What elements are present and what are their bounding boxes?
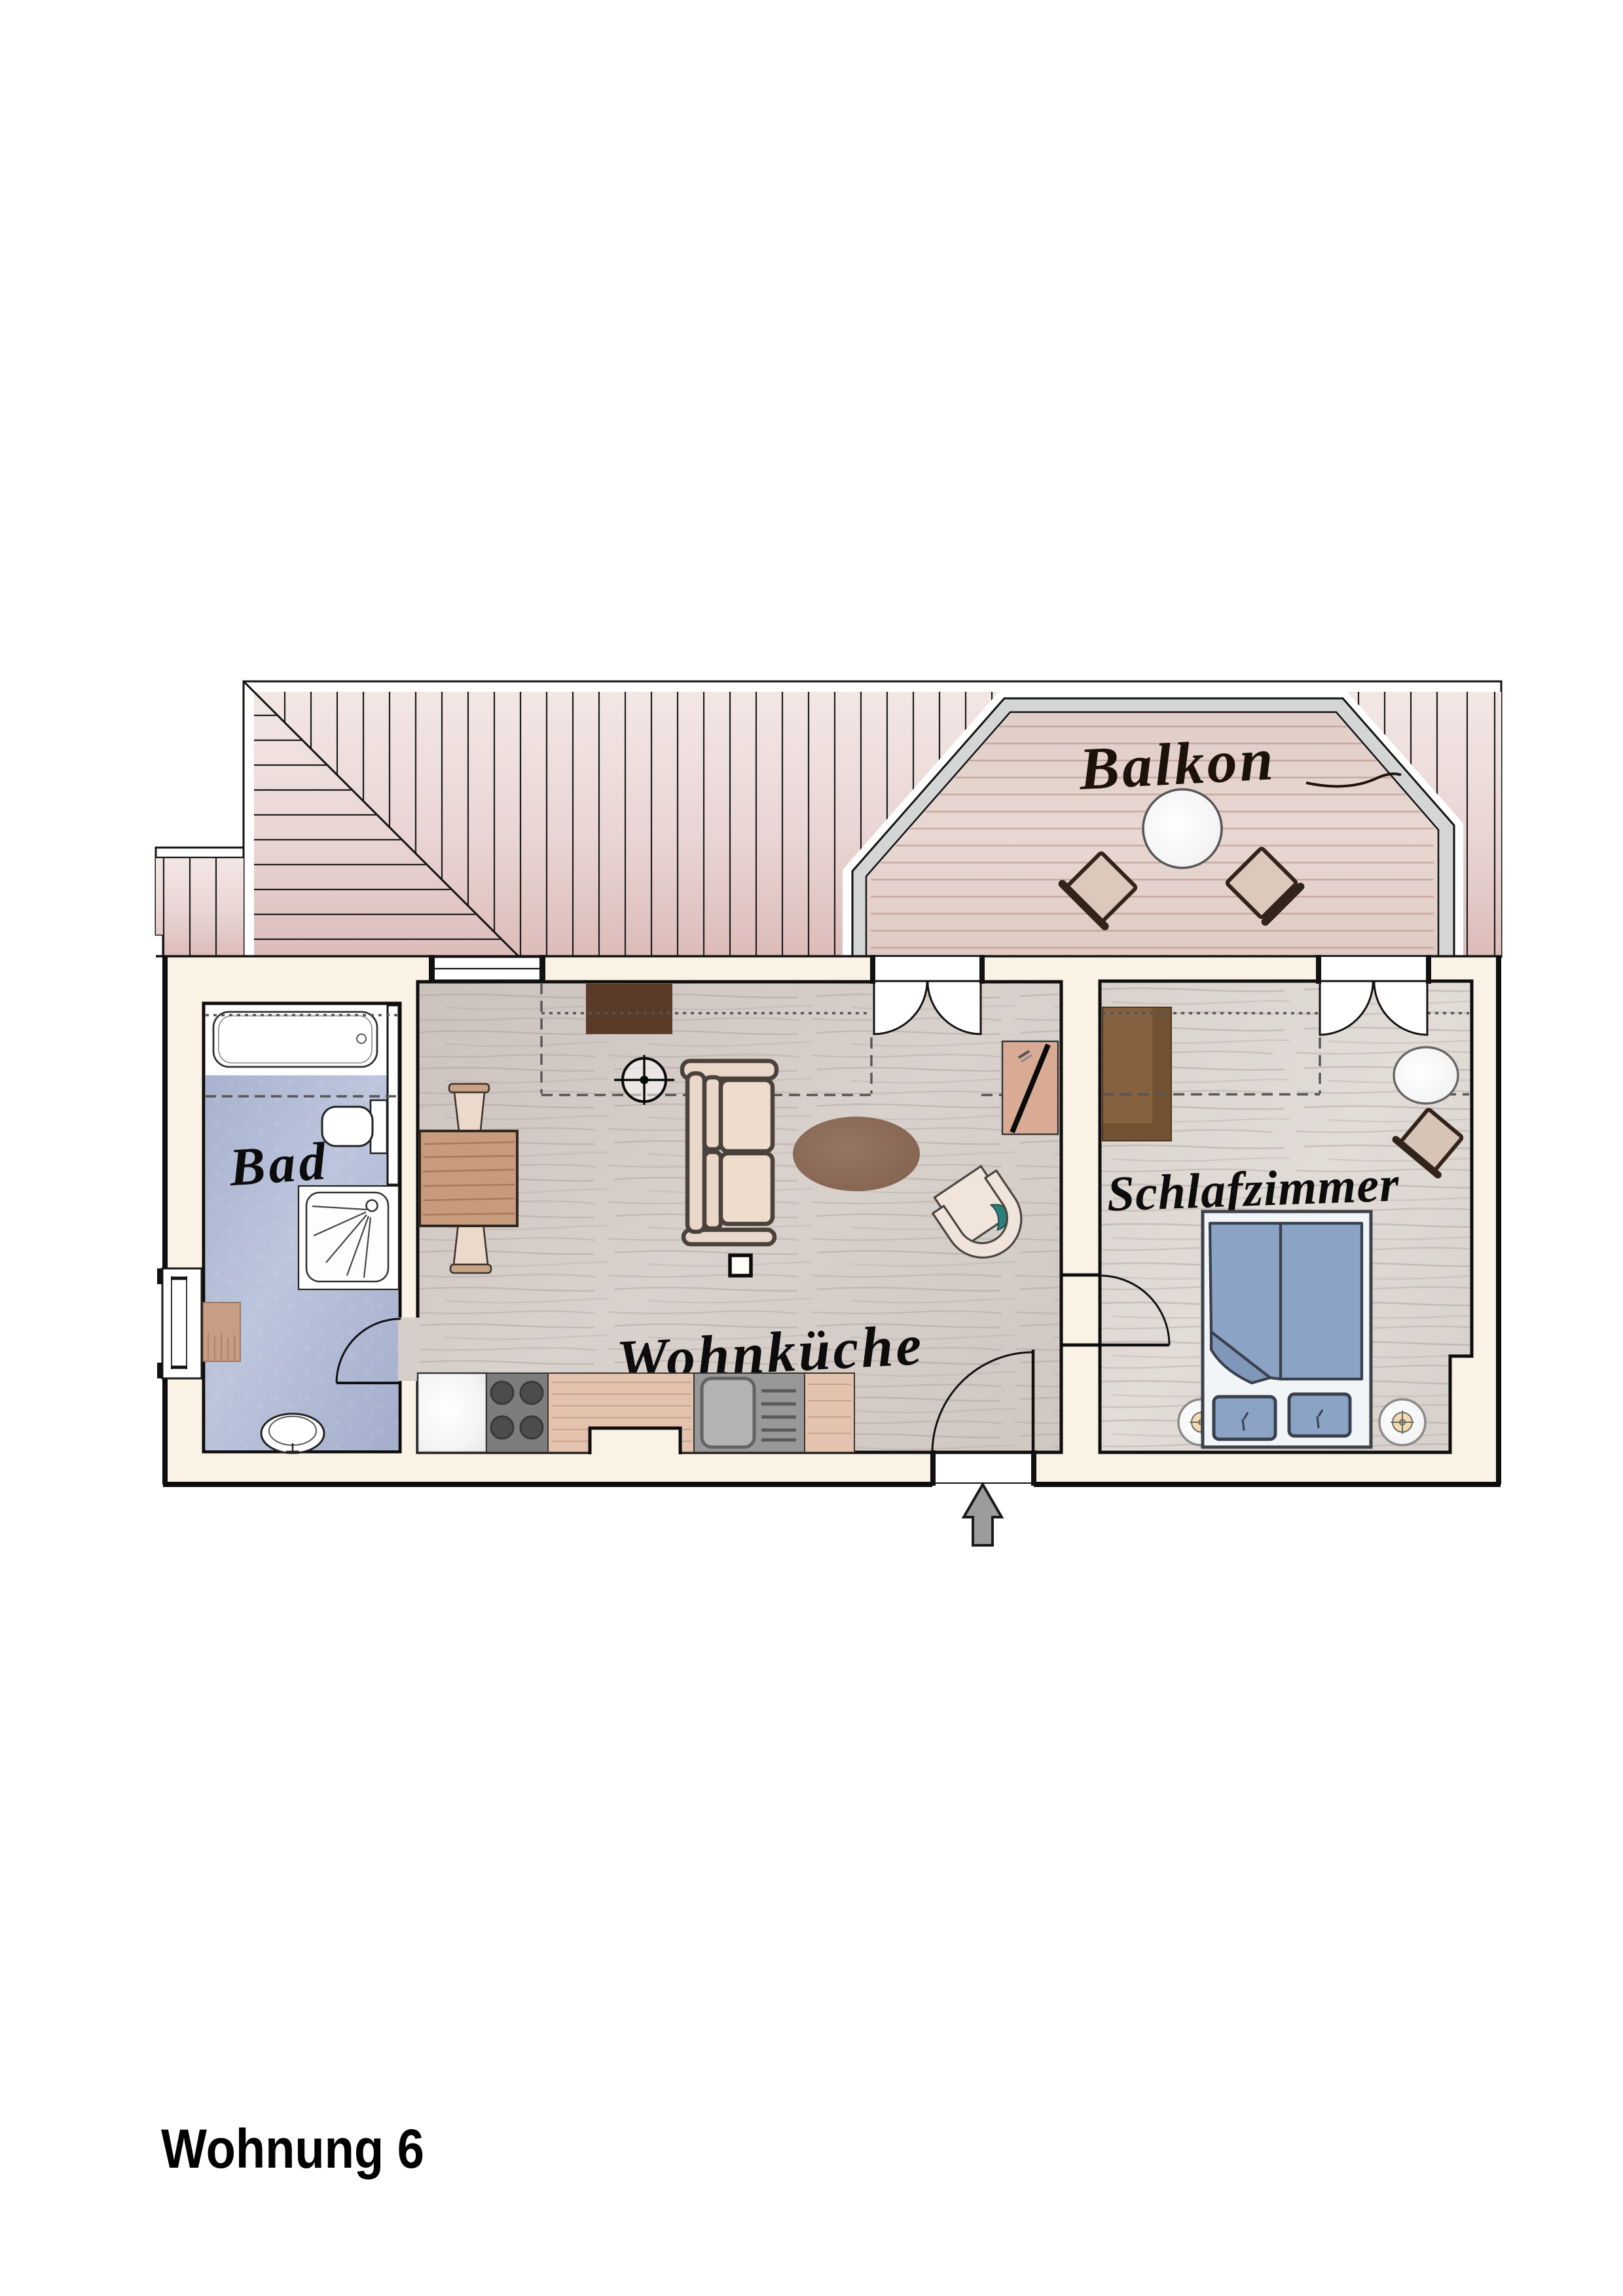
svg-text:Wohnung 6: Wohnung 6 (161, 2118, 424, 2179)
